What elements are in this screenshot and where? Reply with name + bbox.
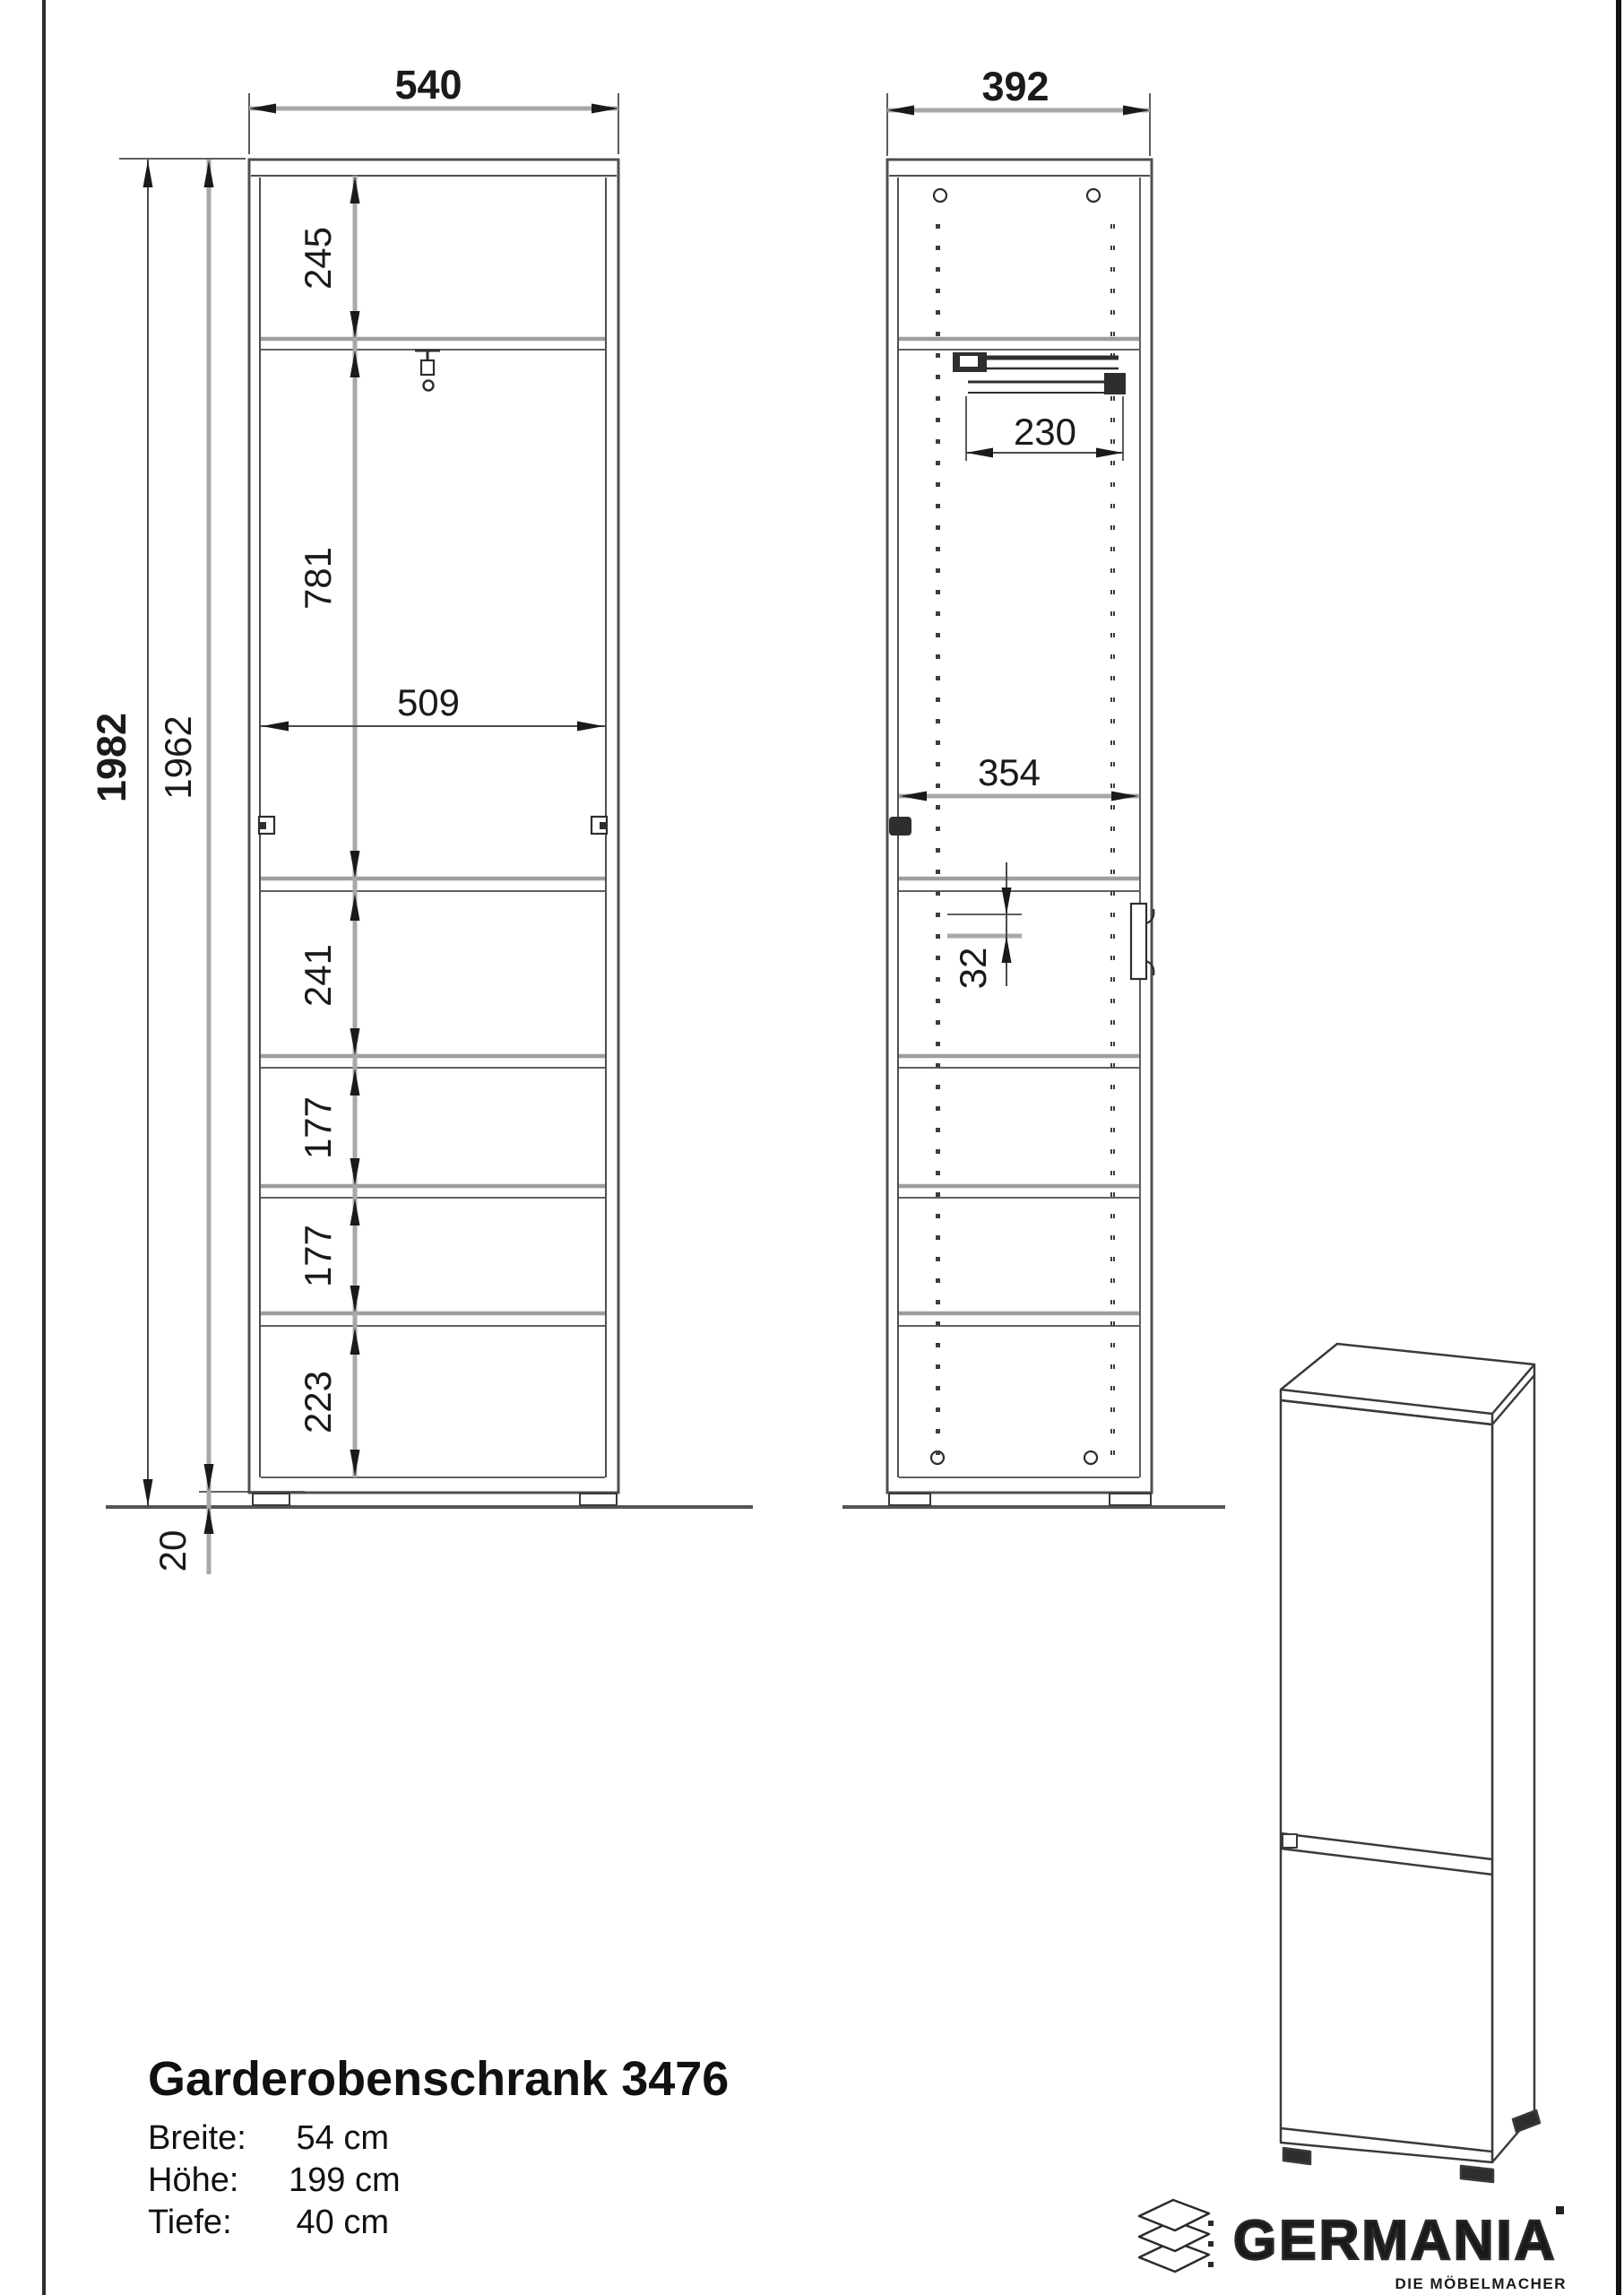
cabinet-side-face <box>1492 1375 1534 2162</box>
foot-front-left <box>1283 2148 1310 2164</box>
cabinet-top-face <box>1281 1344 1534 1414</box>
spec-row-width: Breite:54 cm <box>148 2117 729 2160</box>
front-foot-left <box>253 1494 289 1505</box>
brand-tagline: DIE MÖBELMACHER <box>1395 2275 1567 2292</box>
dim-compartment-2: 177 <box>297 1096 339 1159</box>
spec-value: 199 cm <box>289 2160 389 2202</box>
dim-compartment-3: 177 <box>297 1225 339 1287</box>
side-view <box>887 160 1153 1505</box>
dim-wardrobe-compartment: 781 <box>297 547 339 610</box>
dim-inner-depth: 354 <box>978 751 1041 793</box>
spec-label: Breite: <box>148 2117 289 2160</box>
drawing-canvas: 540 392 1982 1962 20 245 781 509 241 177… <box>0 0 1624 2295</box>
lock <box>889 817 911 836</box>
spec-row-height: Höhe:199 cm <box>148 2160 729 2202</box>
spec-label: Höhe: <box>148 2160 289 2202</box>
cabinet-front-face <box>1281 1400 1492 2162</box>
front-view <box>249 160 618 1505</box>
side-foot-left <box>889 1494 930 1505</box>
brand-wordmark: GERMANIA <box>1233 2210 1558 2272</box>
dim-total-height: 1982 <box>89 713 134 802</box>
screw-hole <box>1087 189 1100 202</box>
dim-side-depth: 392 <box>981 64 1049 109</box>
spec-value: 54 cm <box>289 2117 389 2160</box>
screw-hole <box>934 189 946 202</box>
spec-value: 40 cm <box>289 2202 389 2244</box>
dim-top-compartment: 245 <box>297 227 339 290</box>
technical-drawing-page: 540 392 1982 1962 20 245 781 509 241 177… <box>0 0 1624 2295</box>
dim-front-width: 540 <box>394 62 462 108</box>
product-info: Garderobenschrank 3476 Breite:54 cm Höhe… <box>148 2051 729 2244</box>
door-fitting-right <box>592 817 607 834</box>
dim-inner-width: 509 <box>397 681 460 723</box>
screw-hole <box>1084 1451 1097 1464</box>
side-foot-right <box>1110 1494 1151 1505</box>
brand-logo: GERMANIA DIE MÖBELMACHER <box>1139 2200 1567 2292</box>
registered-mark-dot <box>1556 2206 1564 2214</box>
dim-plinth-height: 20 <box>151 1530 194 1572</box>
door-fitting-left <box>259 817 274 834</box>
product-title: Garderobenschrank 3476 <box>148 2051 729 2107</box>
dim-body-height: 1962 <box>157 715 199 799</box>
perspective-view <box>1281 1344 1540 2182</box>
page-border-right <box>1616 0 1621 2295</box>
dim-compartment-1: 241 <box>297 944 339 1007</box>
stacked-boards-icon <box>1139 2200 1214 2272</box>
dim-hole-pitch: 32 <box>952 948 994 990</box>
hole-row-right <box>1110 224 1115 1472</box>
page-border-left <box>42 0 46 2295</box>
dim-compartment-4: 223 <box>297 1371 339 1433</box>
dim-rail-depth: 230 <box>1014 411 1076 453</box>
foot-front-right <box>1461 2166 1493 2182</box>
front-foot-right <box>580 1494 617 1505</box>
spec-label: Tiefe: <box>148 2202 289 2244</box>
hole-row-left <box>936 224 940 1472</box>
spec-row-depth: Tiefe:40 cm <box>148 2202 729 2244</box>
